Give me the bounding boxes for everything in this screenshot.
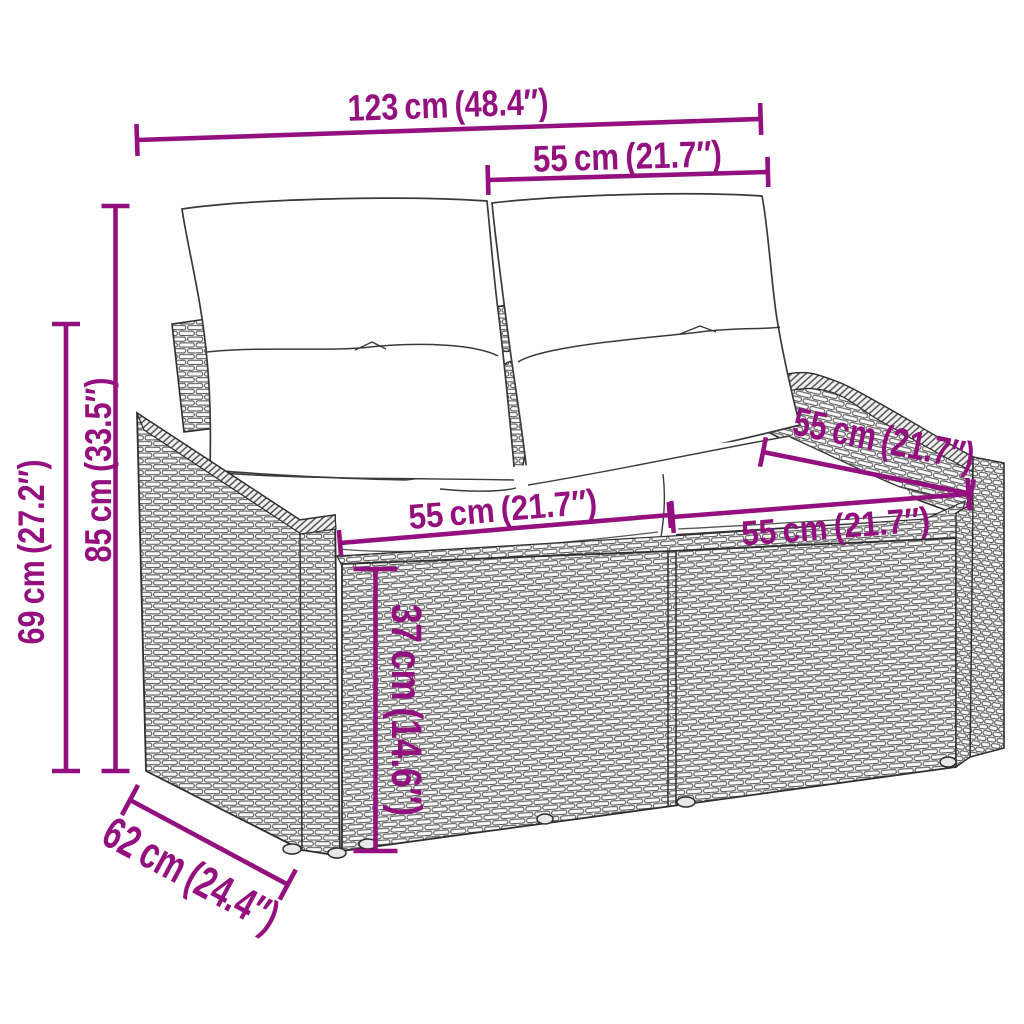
svg-text:55 cm (21.7″): 55 cm (21.7″) <box>532 133 722 179</box>
svg-text:69 cm (27.2″): 69 cm (27.2″) <box>11 460 52 645</box>
svg-text:85 cm (33.5″): 85 cm (33.5″) <box>78 378 119 563</box>
svg-text:37 cm (14.6″): 37 cm (14.6″) <box>382 604 430 816</box>
svg-text:123 cm (48.4″): 123 cm (48.4″) <box>347 81 549 129</box>
